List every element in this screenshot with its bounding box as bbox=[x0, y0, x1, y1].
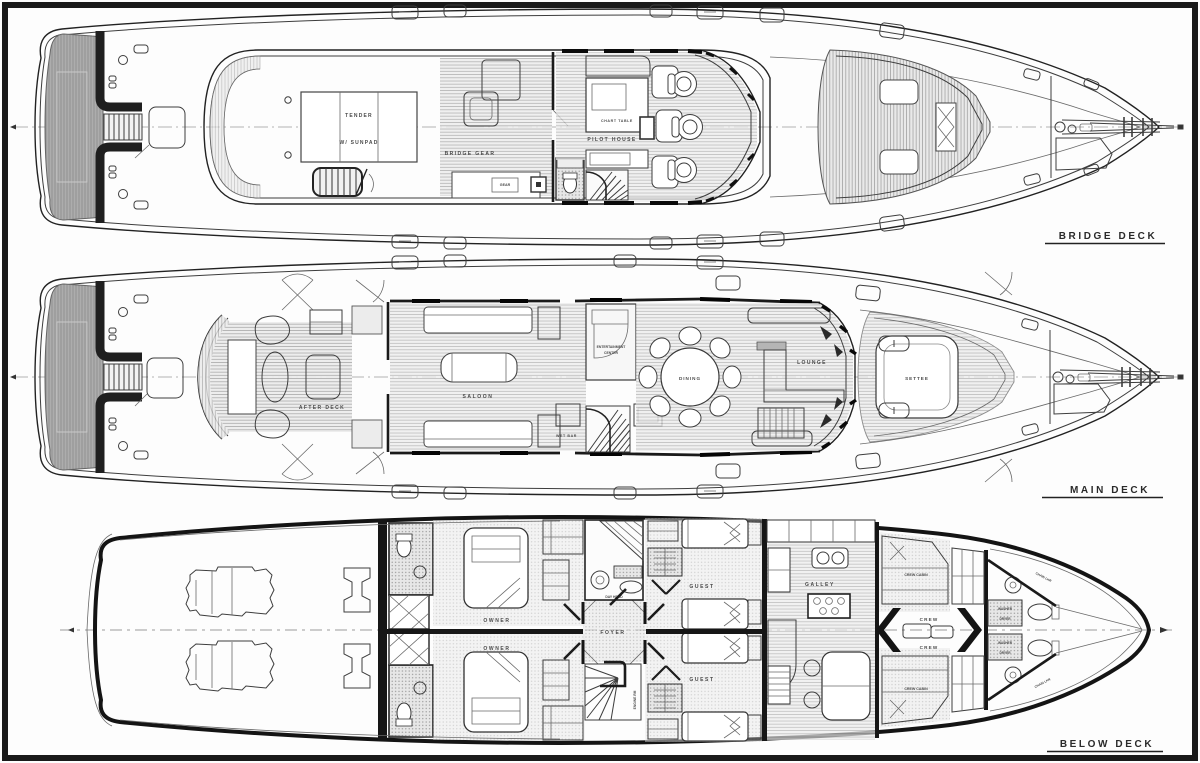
svg-text:WASHER: WASHER bbox=[998, 641, 1013, 645]
svg-text:DRYER: DRYER bbox=[999, 617, 1011, 621]
svg-text:MAIN DECK: MAIN DECK bbox=[1070, 485, 1150, 496]
svg-text:DRYER: DRYER bbox=[999, 651, 1011, 655]
svg-text:OWNER: OWNER bbox=[483, 618, 510, 624]
svg-text:PILOT HOUSE: PILOT HOUSE bbox=[587, 137, 636, 143]
svg-text:CREW: CREW bbox=[920, 617, 939, 622]
svg-text:BRIDGE DECK: BRIDGE DECK bbox=[1059, 231, 1158, 242]
svg-text:AFTER DECK: AFTER DECK bbox=[299, 405, 345, 411]
svg-text:W/ SUNPAD: W/ SUNPAD bbox=[339, 140, 378, 146]
svg-text:ENGINE RM: ENGINE RM bbox=[633, 690, 637, 709]
svg-text:WET BAR: WET BAR bbox=[556, 434, 577, 438]
svg-text:GALLEY: GALLEY bbox=[805, 582, 835, 588]
svg-text:CREW: CREW bbox=[920, 645, 939, 650]
svg-text:DINING: DINING bbox=[679, 376, 701, 381]
svg-text:SALOON: SALOON bbox=[463, 394, 494, 400]
svg-text:CENTER: CENTER bbox=[604, 351, 618, 355]
svg-text:OWNER: OWNER bbox=[483, 646, 510, 652]
svg-text:FOYER: FOYER bbox=[600, 630, 625, 636]
svg-text:GUEST: GUEST bbox=[689, 677, 714, 683]
svg-text:BRIDGE GEAR: BRIDGE GEAR bbox=[445, 151, 496, 157]
svg-text:SETTEE: SETTEE bbox=[905, 376, 929, 381]
svg-text:GUEST: GUEST bbox=[689, 584, 714, 590]
svg-text:BELOW DECK: BELOW DECK bbox=[1060, 739, 1154, 750]
svg-text:GEAR: GEAR bbox=[500, 183, 511, 187]
svg-text:CHART TABLE: CHART TABLE bbox=[601, 119, 633, 123]
svg-text:CREW CABIN: CREW CABIN bbox=[904, 687, 928, 691]
svg-text:WASHER: WASHER bbox=[998, 607, 1013, 611]
svg-text:TENDER: TENDER bbox=[345, 113, 373, 119]
svg-text:ENTERTAINMENT: ENTERTAINMENT bbox=[597, 345, 627, 349]
svg-text:LOUNGE: LOUNGE bbox=[797, 360, 827, 366]
svg-text:CREW CABIN: CREW CABIN bbox=[904, 573, 928, 577]
